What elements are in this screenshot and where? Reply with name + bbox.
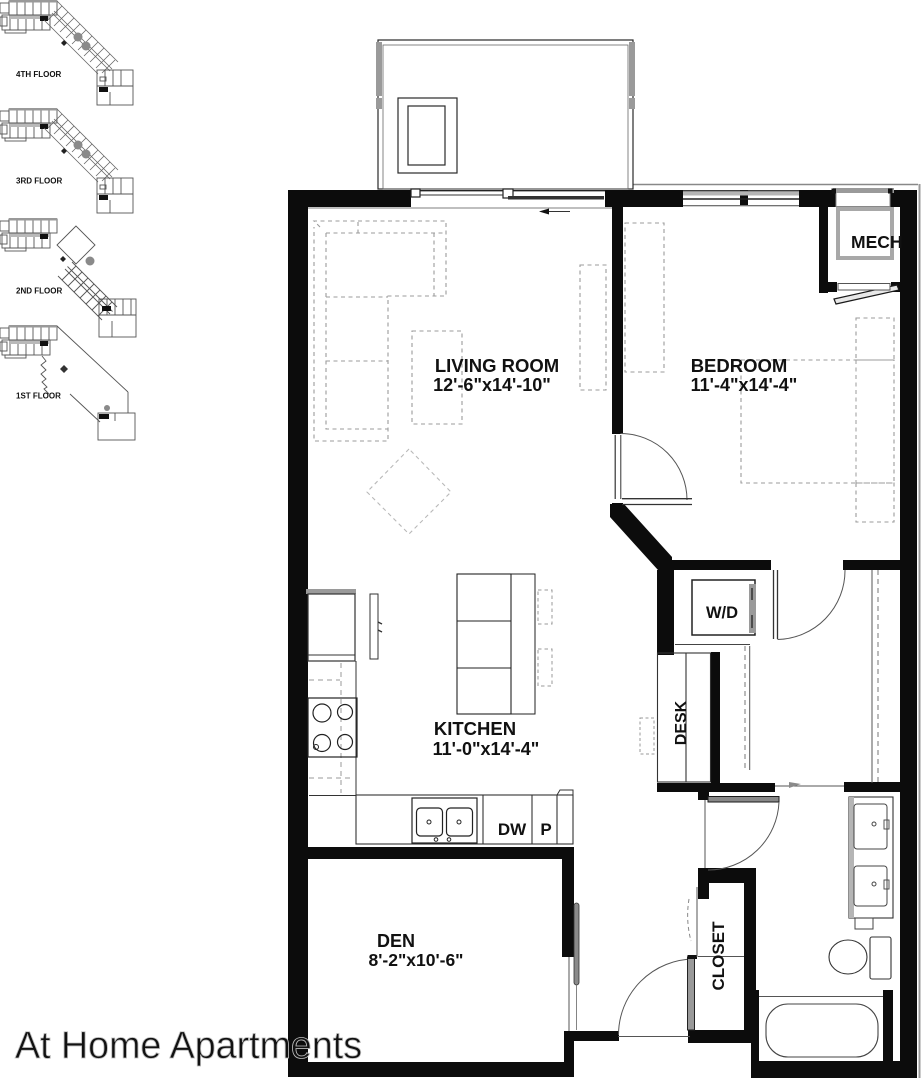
svg-text:MECH: MECH — [851, 232, 903, 252]
svg-text:P: P — [540, 820, 551, 839]
svg-text:11'-0"x14'-4": 11'-0"x14'-4" — [433, 739, 540, 759]
svg-text:8'-2"x10'-6": 8'-2"x10'-6" — [369, 950, 464, 970]
svg-text:W/D: W/D — [706, 604, 738, 622]
svg-text:1ST FLOOR: 1ST FLOOR — [16, 392, 61, 401]
svg-text:2ND FLOOR: 2ND FLOOR — [16, 287, 62, 296]
svg-text:12'-6"x14'-10": 12'-6"x14'-10" — [433, 375, 551, 395]
svg-text:At Home Apartments: At Home Apartments — [15, 1025, 362, 1067]
svg-text:CLOSET: CLOSET — [709, 921, 728, 991]
svg-text:4TH FLOOR: 4TH FLOOR — [16, 70, 62, 79]
svg-text:DW: DW — [498, 820, 527, 839]
svg-text:BEDROOM: BEDROOM — [691, 355, 788, 376]
svg-text:LIVING ROOM: LIVING ROOM — [435, 355, 559, 376]
svg-text:11'-4"x14'-4": 11'-4"x14'-4" — [691, 375, 798, 395]
svg-text:DESK: DESK — [673, 700, 690, 745]
svg-text:DEN: DEN — [377, 931, 415, 951]
svg-text:3RD FLOOR: 3RD FLOOR — [16, 177, 62, 186]
svg-text:KITCHEN: KITCHEN — [434, 718, 516, 739]
